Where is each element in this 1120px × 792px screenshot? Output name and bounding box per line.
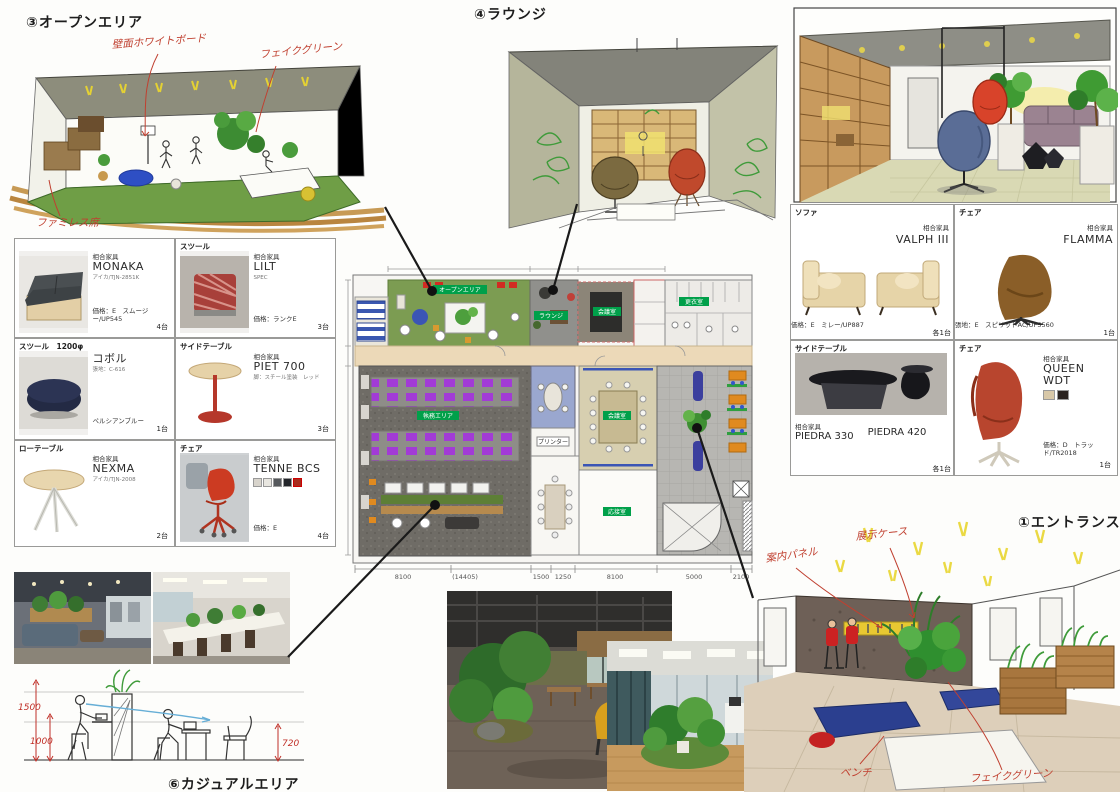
planter bbox=[998, 124, 1024, 170]
open-note-famiresu: ファミレス席 bbox=[36, 217, 100, 229]
svg-text:ラウンジ: ラウンジ bbox=[539, 312, 563, 320]
casual-photo-1 bbox=[14, 572, 151, 664]
floor-plan: オープンエリア ラウンジ 会議室 更衣室 執務エリア 会議室 応接室 プリンター… bbox=[345, 255, 760, 583]
svg-text:5000: 5000 bbox=[686, 573, 703, 581]
price: 価格：E ミレー/UP887 bbox=[791, 319, 864, 329]
product-name: PIET 700 bbox=[253, 361, 331, 373]
open-area-sketch: 壁面ホワイトボード フェイクグリーン ファミレス席 bbox=[8, 26, 390, 233]
svg-text:8100: 8100 bbox=[607, 573, 624, 581]
card-header: サイドテーブル bbox=[795, 344, 949, 353]
price: 価格：E bbox=[253, 524, 277, 532]
quantity: 4台 bbox=[157, 323, 168, 332]
dim-1000: 1000 bbox=[30, 737, 53, 747]
lounge-title: ④ラウンジ bbox=[474, 4, 547, 24]
lounge-sketch bbox=[497, 22, 789, 234]
yellow-stool bbox=[301, 187, 315, 201]
svg-text:1500: 1500 bbox=[533, 573, 550, 581]
product-name: FLAMMA bbox=[959, 234, 1113, 246]
monaka-photo bbox=[19, 251, 88, 333]
card-header: チェア bbox=[959, 344, 1113, 353]
tenne-photo bbox=[180, 453, 249, 542]
price: 価格：D トラッド/TR2018 bbox=[1043, 441, 1113, 457]
nexma-photo bbox=[19, 453, 88, 542]
dim-720: 720 bbox=[282, 739, 299, 749]
spec: アイカ/TJN-2851K bbox=[92, 275, 170, 282]
svg-text:オープンエリア: オープンエリア bbox=[439, 287, 481, 294]
design-board: ③オープンエリア ④ラウンジ ①エントランス ⑥カジュアルエリア bbox=[0, 0, 1120, 792]
price: ペルシアンブルー bbox=[92, 417, 144, 425]
svg-text:8100: 8100 bbox=[395, 573, 412, 581]
queen-photo bbox=[959, 353, 1039, 471]
price: 張地：E スピリットAC/UP5560 bbox=[955, 319, 1054, 329]
casual-photo-2 bbox=[153, 572, 290, 664]
plan-corridor bbox=[355, 346, 752, 366]
svg-text:1250: 1250 bbox=[555, 573, 572, 581]
casual-section-sketch: 1500 1000 720 bbox=[16, 664, 312, 778]
red-pouf bbox=[809, 732, 835, 748]
color-swatches bbox=[253, 478, 331, 487]
quantity: 各1台 bbox=[933, 464, 951, 474]
furniture-card-queen: チェア 相合家具 QUEEN WDT bbox=[954, 340, 1118, 476]
furniture-card-monaka: 相合家具 MONAKA アイカ/TJN-2851K 価格：E スムージー/UP5… bbox=[14, 238, 175, 338]
furniture-card-stool: スツール 1200φ コボル 張地：C-616 ペルシアンブルー 1台 bbox=[14, 338, 175, 440]
product-name: NEXMA bbox=[92, 463, 170, 475]
dim-1500: 1500 bbox=[18, 703, 41, 713]
blue-pouf bbox=[119, 170, 153, 186]
product-name: TENNE BCS bbox=[253, 463, 331, 475]
quantity: 1台 bbox=[157, 425, 168, 434]
card-header bbox=[19, 242, 170, 251]
product-name: PIEDRA 330 bbox=[795, 431, 854, 442]
furniture-card-piet700: サイドテーブル 相合家具 PIET 700 脚：スチール塗装 レッド 3台 bbox=[175, 338, 336, 440]
entrance-note-panel: 案内パネル bbox=[765, 546, 819, 565]
card-header: スツール 1200φ bbox=[19, 342, 170, 351]
product-name: LILT bbox=[253, 261, 331, 273]
valph-photo bbox=[795, 245, 945, 319]
piet-photo bbox=[180, 351, 249, 435]
furniture-panel-right: ソファ 相合家具 VALPH III 価格：E ミレー/UP887 各1台 bbox=[790, 204, 1118, 476]
casual-photos bbox=[14, 572, 290, 664]
egg-chair bbox=[592, 157, 638, 199]
furniture-card-nexma: ローテーブル 相合家具 NEXMA アイカ/TJN-2008 2台 bbox=[14, 440, 175, 547]
flamma-photo bbox=[959, 245, 1109, 325]
furniture-card-piedra: サイドテーブル 相合家具 PIEDRA 330 PIEDRA 420 各1台 bbox=[790, 340, 954, 476]
svg-text:執務エリア: 執務エリア bbox=[423, 412, 453, 420]
furniture-panel-left: 相合家具 MONAKA アイカ/TJN-2851K 価格：E スムージー/UP5… bbox=[14, 238, 336, 547]
card-header: ソファ bbox=[795, 208, 949, 217]
entrance-sketch: 案内パネル 展示ケース ベンチ フェイクグリーン bbox=[744, 500, 1120, 792]
spec: アイカ/TJN-2008 bbox=[92, 477, 170, 484]
product-name: VALPH III bbox=[795, 234, 949, 246]
svg-text:会議室: 会議室 bbox=[598, 308, 616, 316]
quantity: 1台 bbox=[1100, 461, 1111, 470]
card-header: ローテーブル bbox=[19, 444, 170, 453]
card-header: サイドテーブル bbox=[180, 342, 331, 351]
svg-text:(14405): (14405) bbox=[452, 573, 478, 581]
quantity: 各1台 bbox=[933, 328, 951, 338]
svg-text:応接室: 応接室 bbox=[608, 508, 626, 516]
quantity: 3台 bbox=[318, 323, 329, 332]
quantity: 3台 bbox=[318, 425, 329, 434]
plan-dim-line bbox=[355, 565, 752, 573]
entrance-note-bench: ベンチ bbox=[840, 767, 872, 779]
lounge-render-sketch bbox=[792, 6, 1118, 204]
lilt-photo bbox=[180, 251, 249, 333]
furniture-card-flamma: チェア 相合家具 FLAMMA 張地：E スピリットAC/UP5560 1台 bbox=[954, 204, 1118, 340]
product-name-2: PIEDRA 420 bbox=[868, 427, 927, 442]
spec: 張地：C-616 bbox=[92, 367, 170, 374]
product-name: MONAKA bbox=[92, 261, 170, 273]
product-name: コボル bbox=[92, 353, 170, 365]
planter bbox=[1080, 126, 1114, 184]
quantity: 2台 bbox=[157, 532, 168, 541]
svg-text:会議室: 会議室 bbox=[608, 412, 626, 420]
entrance-note-display: 展示ケース bbox=[855, 526, 908, 543]
furniture-card-tenne: チェア 相合家具 TENNE BCS bbox=[175, 440, 336, 547]
product-name: QUEEN WDT bbox=[1043, 363, 1113, 386]
figure-low bbox=[154, 710, 210, 761]
price: 価格：ランクE bbox=[253, 315, 296, 323]
svg-text:プリンター: プリンター bbox=[538, 438, 568, 446]
plan-dims: 8100 (14405) 1500 1250 8100 5000 2100 bbox=[395, 573, 750, 581]
quantity: 4台 bbox=[318, 532, 329, 541]
furniture-card-lilt: スツール 相合家具 LILT SPEC 価格：ランクE 3台 bbox=[175, 238, 336, 338]
quantity: 1台 bbox=[1104, 328, 1115, 338]
red-egg-chair bbox=[973, 80, 1007, 124]
piedra-photo bbox=[795, 353, 947, 415]
spec: SPEC bbox=[253, 275, 331, 282]
furniture-card-valph: ソファ 相合家具 VALPH III 価格：E ミレー/UP887 各1台 bbox=[790, 204, 954, 340]
stool-photo bbox=[19, 351, 88, 435]
card-header: チェア bbox=[959, 208, 1113, 217]
card-header: スツール bbox=[180, 242, 331, 251]
fabric-swatches bbox=[1043, 390, 1113, 400]
empty-chair bbox=[224, 716, 251, 760]
card-header: チェア bbox=[180, 444, 331, 453]
price: 価格：E スムージー/UP545 bbox=[92, 307, 170, 323]
open-note-fakegreen: フェイクグリーン bbox=[259, 40, 343, 61]
spec: 脚：スチール塗装 レッド bbox=[253, 375, 331, 382]
maker: 相合家具 bbox=[1087, 224, 1113, 232]
open-note-whiteboard: 壁面ホワイトボード bbox=[111, 32, 207, 51]
svg-text:更衣室: 更衣室 bbox=[685, 298, 703, 306]
maker: 相合家具 bbox=[923, 224, 949, 232]
maker: 相合家具 bbox=[795, 421, 854, 431]
